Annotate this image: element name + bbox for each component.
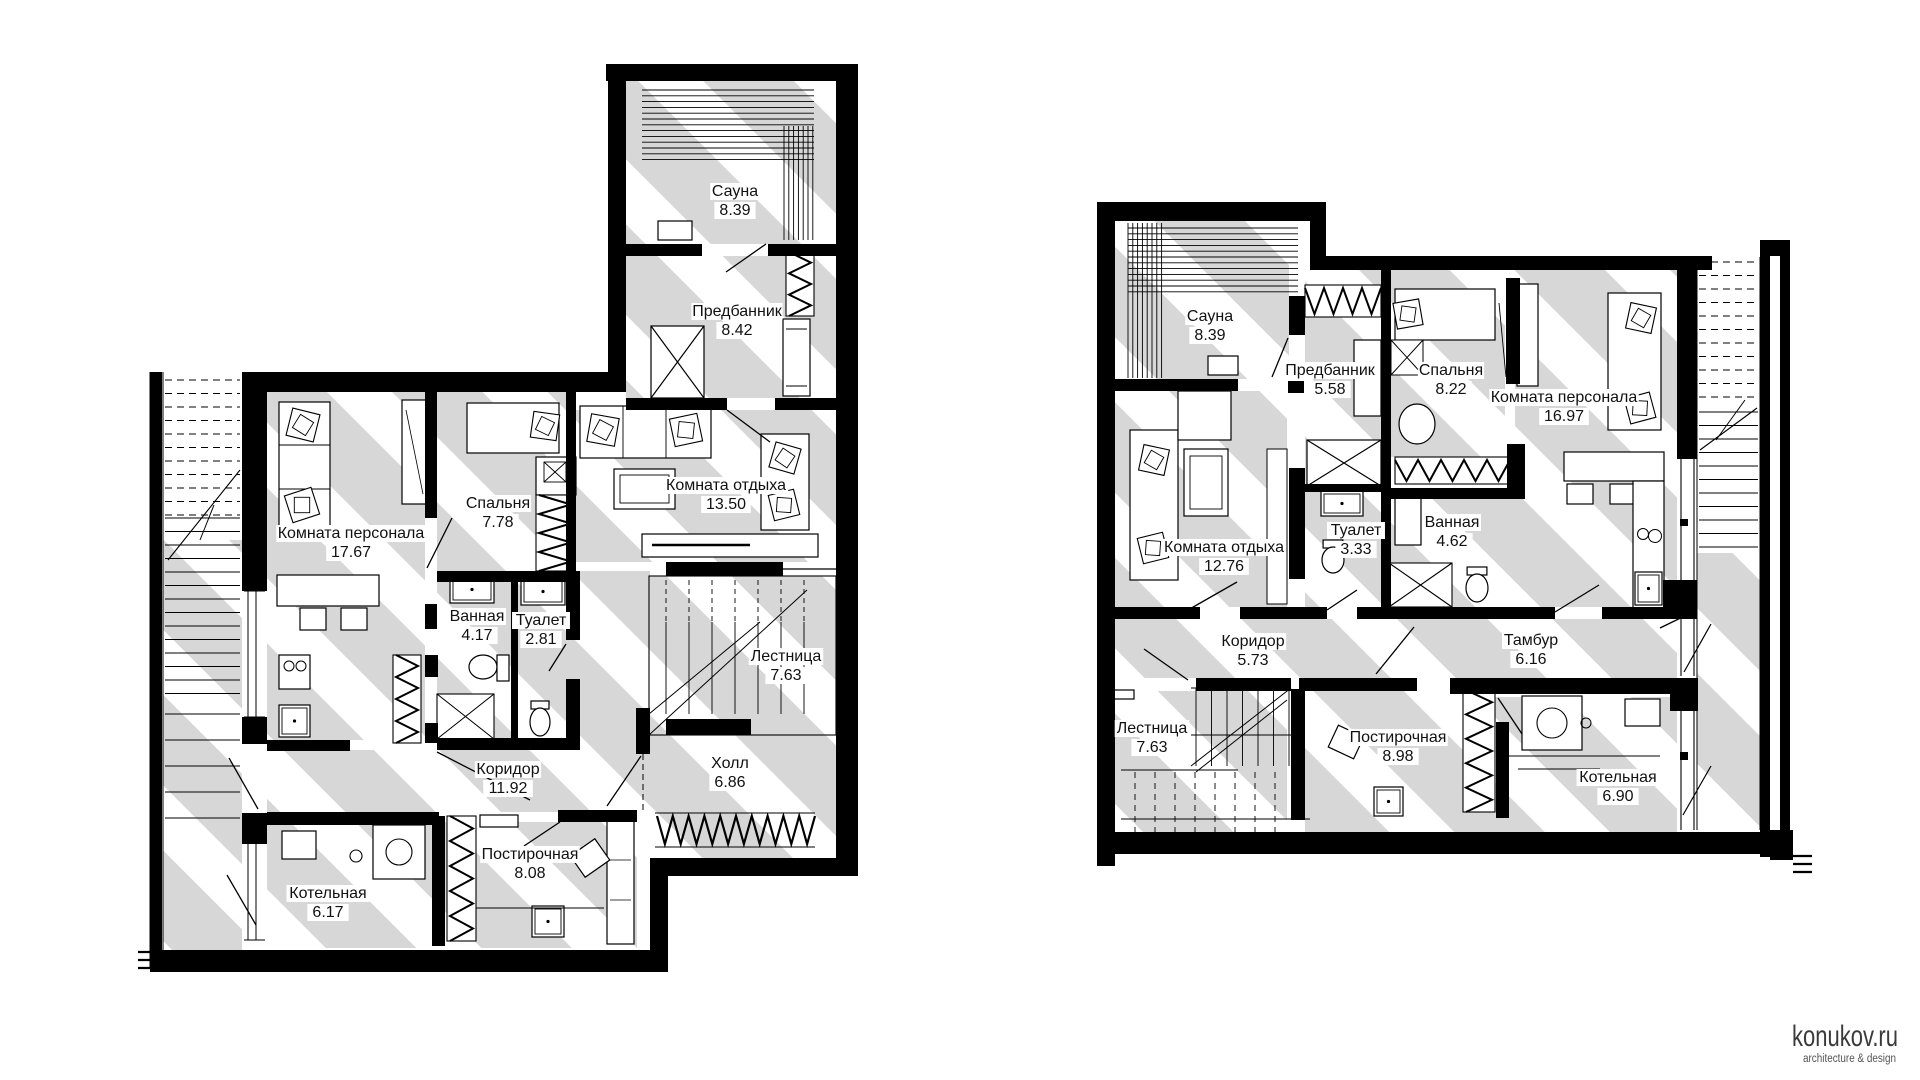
- svg-text:6.16: 6.16: [1515, 651, 1546, 668]
- svg-text:Туалет: Туалет: [516, 612, 567, 629]
- svg-text:Коридор: Коридор: [1221, 633, 1284, 650]
- svg-text:Котельная: Котельная: [1579, 769, 1656, 786]
- svg-text:6.90: 6.90: [1602, 788, 1633, 805]
- svg-text:Комната персонала: Комната персонала: [1491, 389, 1638, 406]
- svg-text:7.78: 7.78: [482, 514, 513, 531]
- svg-text:Комната отдыха: Комната отдыха: [1164, 539, 1284, 556]
- svg-text:6.86: 6.86: [714, 774, 745, 791]
- svg-text:8.39: 8.39: [1194, 327, 1225, 344]
- svg-text:Котельная: Котельная: [289, 885, 366, 902]
- svg-text:8.42: 8.42: [721, 322, 752, 339]
- svg-text:8.22: 8.22: [1435, 381, 1466, 398]
- svg-text:Сауна: Сауна: [1187, 308, 1233, 325]
- svg-text:Комната отдыха: Комната отдыха: [666, 477, 786, 494]
- svg-text:konukov.ru: konukov.ru: [1792, 1020, 1898, 1053]
- svg-text:Спальня: Спальня: [466, 495, 530, 512]
- svg-text:8.39: 8.39: [719, 202, 750, 219]
- svg-text:2.81: 2.81: [525, 631, 556, 648]
- svg-text:3.33: 3.33: [1340, 541, 1371, 558]
- svg-text:Туалет: Туалет: [1331, 522, 1382, 539]
- svg-text:4.62: 4.62: [1436, 533, 1467, 550]
- svg-text:Постирочная: Постирочная: [482, 846, 579, 863]
- svg-text:Сауна: Сауна: [712, 183, 758, 200]
- svg-text:12.76: 12.76: [1204, 558, 1244, 575]
- svg-text:Тамбур: Тамбур: [1504, 632, 1558, 649]
- svg-text:5.58: 5.58: [1314, 381, 1345, 398]
- svg-text:8.08: 8.08: [514, 865, 545, 882]
- svg-text:Лестница: Лестница: [751, 648, 822, 665]
- svg-text:7.63: 7.63: [770, 667, 801, 684]
- svg-text:8.98: 8.98: [1382, 748, 1413, 765]
- svg-text:11.92: 11.92: [489, 780, 528, 797]
- svg-text:Спальня: Спальня: [1419, 362, 1483, 379]
- svg-text:Холл: Холл: [711, 755, 749, 772]
- svg-text:Постирочная: Постирочная: [1350, 729, 1447, 746]
- svg-text:Предбанник: Предбанник: [1285, 362, 1376, 379]
- svg-text:architecture & design: architecture & design: [1803, 1053, 1896, 1065]
- svg-text:13.50: 13.50: [706, 496, 746, 513]
- svg-text:17.67: 17.67: [331, 544, 371, 561]
- svg-text:Комната персонала: Комната персонала: [278, 525, 425, 542]
- svg-text:5.73: 5.73: [1237, 652, 1268, 669]
- svg-text:7.63: 7.63: [1136, 739, 1167, 756]
- svg-text:6.17: 6.17: [312, 904, 343, 921]
- svg-text:Ванная: Ванная: [1425, 514, 1480, 531]
- svg-text:16.97: 16.97: [1544, 408, 1584, 425]
- svg-text:Ванная: Ванная: [450, 608, 505, 625]
- svg-text:Предбанник: Предбанник: [692, 303, 783, 320]
- svg-text:4.17: 4.17: [461, 627, 492, 644]
- svg-text:Лестница: Лестница: [1117, 720, 1188, 737]
- svg-text:Коридор: Коридор: [476, 761, 539, 778]
